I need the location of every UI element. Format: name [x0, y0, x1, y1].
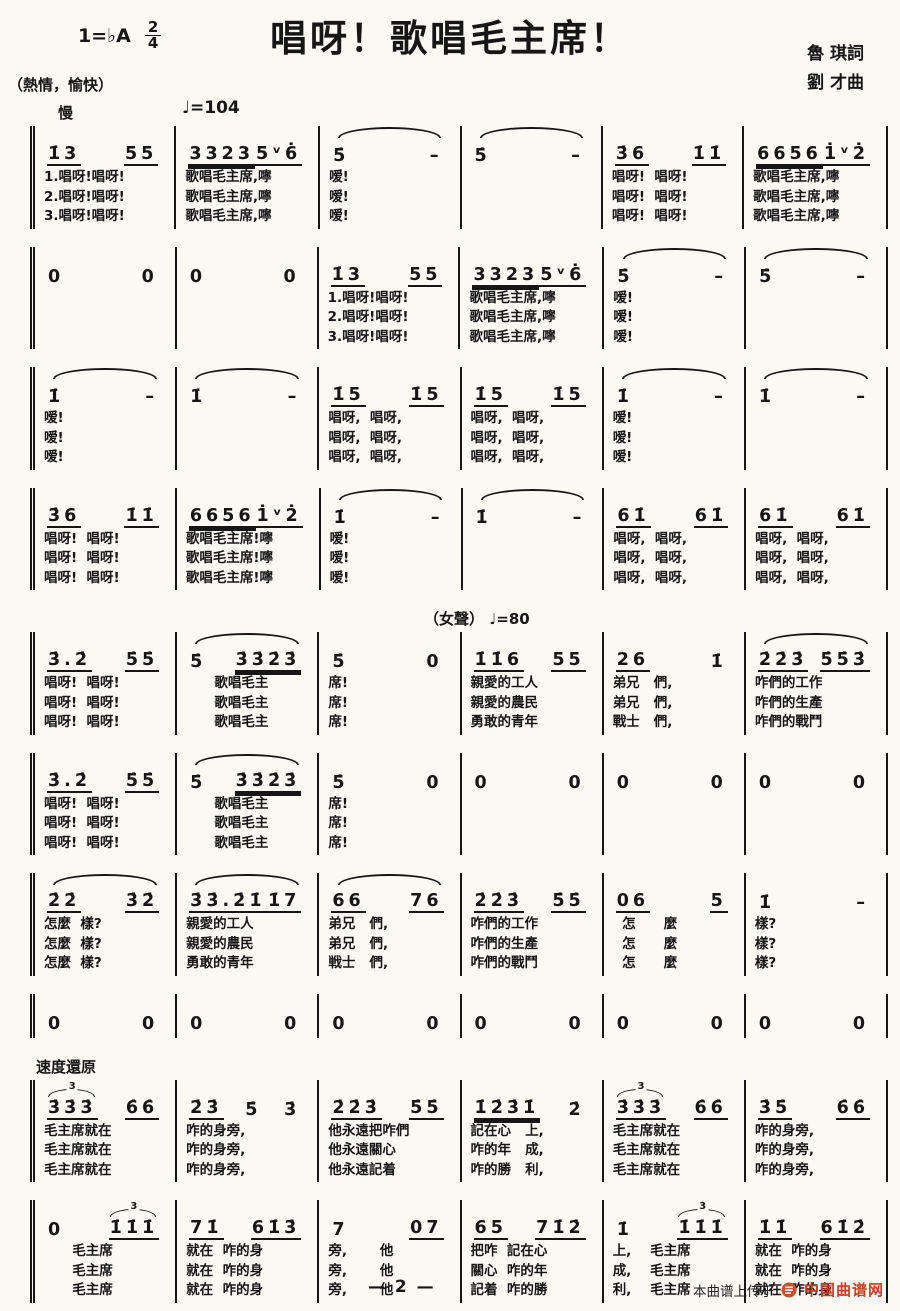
measure: 5̇0席!席!席! [319, 632, 461, 735]
lyric-line: 就在 咋的身 [746, 1242, 886, 1262]
lyric-line: 席! [319, 674, 459, 694]
note-group: 3̇ [283, 1100, 301, 1120]
note-group: 0 [568, 1014, 586, 1034]
notes-row: 00 [604, 994, 744, 1036]
lyric-line: 唱呀! 唱呀! [603, 207, 742, 227]
measure: 3̇.2̇5̇5̇唱呀! 唱呀!唱呀! 唱呀!唱呀! 唱呀! [35, 753, 177, 856]
notes-row: 3̇61̇1̇ [35, 488, 175, 530]
note-group: 0 [141, 267, 159, 287]
note-group: 66 [331, 891, 365, 913]
notes-row: 065 [604, 873, 744, 915]
note-group: 6656 [189, 506, 256, 528]
lyric-line: 歌唱毛主席,嚀 [176, 168, 318, 188]
measure: 33235ᵛ6̇歌唱毛主席,嚀歌唱毛主席,嚀歌唱毛主席,嚀 [176, 126, 320, 229]
notes-row: 1̇– [746, 367, 886, 409]
lyric-line: 怎麼 樣? [35, 935, 175, 955]
lyric-line: 毛主席就在 [35, 1141, 175, 1161]
measure: 1̇–嗳!嗳!嗳! [35, 367, 177, 470]
note-group: 0 [710, 773, 728, 793]
note-group: 5̇5̇ [125, 650, 159, 672]
note-group: 0 [758, 773, 776, 793]
notes-row: 1̇355 [319, 247, 459, 289]
measure: 3̇5̇6̇6̇咋的身旁,咋的身旁,咋的身旁, [746, 1080, 888, 1183]
notes-row: 00 [35, 247, 175, 289]
note-group: 0 [474, 1014, 492, 1034]
note-group: 3̇3̇3̇3 [47, 1098, 98, 1120]
note-group: 1̇ᵛ2̇ [823, 144, 870, 166]
notes-row: 5̇– [462, 126, 601, 168]
note-group: 1̇ [333, 508, 351, 528]
system: 2̇2̇3̇2̇怎麼 樣?怎麼 樣?怎麼 樣?3̇3̇.2̇1̇1̇7親愛的工人… [28, 873, 890, 1038]
score: 1̇3551.唱呀!唱呀!2.唱呀!唱呀!3.唱呀!唱呀!33235ᵛ6̇歌唱毛… [0, 126, 900, 1303]
note-group: 1̇ [47, 387, 65, 407]
lyric-line: 毛主席就在 [35, 1161, 175, 1181]
upload-note: 本曲谱上传于 [693, 1280, 774, 1300]
lyric-line: 2.唱呀!唱呀! [319, 308, 459, 328]
lyric-line: 咋的勝 利, [462, 1161, 602, 1181]
notes-row: 00 [319, 994, 459, 1036]
note-group: 1̇1̇ [758, 1218, 792, 1240]
system: 3̇.2̇5̇5̇唱呀! 唱呀!唱呀! 唱呀!唱呀! 唱呀!5̇3̇3̇2̇3̇… [28, 632, 890, 855]
system: 1̇3551.唱呀!唱呀!2.唱呀!唱呀!3.唱呀!唱呀!33235ᵛ6̇歌唱毛… [28, 126, 890, 349]
measure: 2̇3̇5̇3̇咋的身旁,咋的身旁,咋的身旁, [177, 1080, 319, 1183]
note-group: – [287, 387, 302, 407]
notes-row: 00 [746, 994, 886, 1036]
notes-row: 261̇ [604, 632, 744, 674]
tempo-marking: ♩=104 [182, 98, 240, 118]
note-group: 0 [425, 1014, 443, 1034]
voice-line: 3̇61̇1̇唱呀! 唱呀!唱呀! 唱呀!唱呀! 唱呀!66561̇ᵛ2̇歌唱毛… [30, 488, 888, 591]
measure: 5̇– [462, 126, 603, 229]
note-group: – [430, 508, 445, 528]
lyric-line: 歌唱毛主席,嚀 [460, 328, 602, 348]
lyric-line: 樣? [746, 915, 886, 935]
score-header: 1=♭A 2 4 唱呀！歌唱毛主席！ 魯 琪詞 劉 才曲 （熱情，愉快） 慢 ♩… [0, 0, 900, 126]
measure: 5̇–嗳!嗳!嗳! [320, 126, 461, 229]
note-group: 0 [141, 1014, 159, 1034]
expression-mark: （熱情，愉快） [8, 74, 113, 95]
notes-row: 1̇355 [35, 126, 174, 168]
notes-row: 00 [35, 994, 175, 1036]
measure: 5̇– [746, 247, 888, 350]
note-group: 06 [616, 891, 650, 913]
lyric-line: 他永遠關心 [319, 1141, 459, 1161]
lyric-line: 歌唱毛主席,嚀 [744, 207, 886, 227]
measure: 6676弟兄 們,弟兄 們,戦士 們, [319, 873, 461, 976]
site-name: 中国曲谱网 [804, 1279, 884, 1300]
triplet-mark: 3 [67, 1082, 78, 1092]
measure: 00 [604, 753, 746, 856]
lyric-line: 唱呀, 唱呀, [462, 429, 602, 449]
notes-row: 707 [319, 1200, 459, 1242]
notes-row: 5̇3̇3̇2̇3̇ [177, 632, 317, 674]
system: 3̇3̇3̇36̇6̇毛主席就在毛主席就在毛主席就在2̇3̇5̇3̇咋的身旁,咋… [28, 1080, 890, 1303]
measure: 00 [746, 994, 888, 1038]
note-group: 3̇3̇2̇3̇ [235, 771, 302, 793]
note-group: 0 [616, 773, 634, 793]
notes-row: 5̇0 [319, 632, 459, 674]
voice-line: 1̇3551.唱呀!唱呀!2.唱呀!唱呀!3.唱呀!唱呀!33235ᵛ6̇歌唱毛… [30, 126, 888, 229]
note-group: 6656 [756, 144, 823, 166]
note-group: 61̇ [758, 506, 792, 528]
notes-row: 66561̇ᵛ2̇ [744, 126, 886, 168]
note-group: 5̇ [332, 146, 350, 166]
lyric-line: 咋的身旁, [177, 1122, 317, 1142]
measure: 2̇2̇3̇2̇怎麼 樣?怎麼 樣?怎麼 樣? [35, 873, 177, 976]
lyric-line: 毛主席就在 [604, 1161, 744, 1181]
note-group: 5̇ [474, 146, 492, 166]
note-group: 61̇ [694, 506, 728, 528]
lyric-line: 戦士 們, [319, 954, 459, 974]
lyric-line: 嗳! [604, 289, 744, 309]
note-group: 5̇ [331, 773, 349, 793]
lyric-line: 歌唱毛主席!嚀 [177, 549, 319, 569]
measure: 1̇3551.唱呀!唱呀!2.唱呀!唱呀!3.唱呀!唱呀! [35, 126, 176, 229]
measure: 61̇61̇唱呀, 唱呀,唱呀, 唱呀,唱呀, 唱呀, [746, 488, 888, 591]
note-group: 1̇3 [47, 144, 81, 166]
notes-row: 00 [462, 994, 602, 1036]
note-group: 0 [425, 652, 443, 672]
note-group: 0 [474, 773, 492, 793]
note-group: 7 [331, 1220, 349, 1240]
notes-row: 2̇2̇3̇5̇5̇ [319, 1080, 459, 1122]
measure: 00 [177, 247, 319, 350]
note-group: 6̇6̇ [125, 1098, 159, 1120]
note-group: 3̇5̇ [758, 1098, 792, 1120]
tempo-annotation: （女聲） ♩=80 [424, 608, 890, 629]
measure: 1̇2̇3̇1̇2̇記在心 上,咋的年 成,咋的勝 利, [462, 1080, 604, 1183]
note-group: 0 [852, 1014, 870, 1034]
notes-row: 5̇– [746, 247, 886, 289]
composer-credit: 劉 才曲 [807, 69, 864, 98]
note-group: 5 [710, 891, 728, 913]
lyric-line: 歌唱毛主席,嚀 [176, 207, 318, 227]
note-group: 5̇5̇ [125, 771, 159, 793]
notes-row: 1̇– [35, 367, 175, 409]
note-group: – [855, 893, 870, 913]
lyric-line: 唱呀! 唱呀! [35, 795, 175, 815]
lyric-line: 弟兄 們, [604, 674, 744, 694]
note-group: 55 [124, 144, 158, 166]
lyric-line: 唱呀, 唱呀, [319, 429, 459, 449]
measure: 1̇–嗳!嗳!嗳! [604, 367, 746, 470]
measure: 1̇– [177, 367, 319, 470]
note-group: 5̇ [758, 267, 776, 287]
notes-row: 6571̇2̇ [462, 1200, 602, 1242]
note-group: – [713, 387, 728, 407]
notes-row: 00 [462, 753, 602, 795]
lyric-line: 咋的身旁, [177, 1141, 317, 1161]
lyric-line: 唱呀, 唱呀, [604, 569, 744, 589]
lyric-line: 嗳! [321, 569, 461, 589]
note-group: 6̇6̇ [694, 1098, 728, 1120]
lyric-line: 唱呀! 唱呀! [35, 694, 175, 714]
note-group: 5ᵛ6̇ [255, 144, 302, 166]
notes-row: 00 [177, 247, 317, 289]
note-group: 3̇3̇.2̇1̇ [189, 891, 266, 913]
notes-row: 2̇2̇3̇5̇5̇ [462, 873, 602, 915]
note-group: 61̇2̇ [820, 1218, 871, 1240]
lyric-line: 唱呀! 唱呀! [35, 674, 175, 694]
note-group: 0 [47, 267, 65, 287]
page-title: 唱呀！歌唱毛主席！ [0, 8, 900, 62]
lyric-line: 咋們的生產 [746, 694, 886, 714]
lyric-line: 嗳! [604, 328, 744, 348]
lyric-line: 歌唱毛主 [177, 674, 317, 694]
note-group: – [572, 508, 587, 528]
measure: 1̇–嗳!嗳!嗳! [321, 488, 463, 591]
measure: 33235ᵛ6̇歌唱毛主席,嚀歌唱毛主席,嚀歌唱毛主席,嚀 [460, 247, 604, 350]
note-group: 0 [47, 1014, 65, 1034]
notes-row: 3̇61̇1̇ [603, 126, 742, 168]
notes-row: 5̇– [320, 126, 459, 168]
lyric-line: 1.唱呀!唱呀! [35, 168, 174, 188]
notes-row: 1̇– [177, 367, 317, 409]
lyric-line: 咋們的工作 [746, 674, 886, 694]
note-group: – [570, 146, 585, 166]
measure: 2̇2̇3̇5̇5̇3̇咋們的工作咋們的生產咋們的戰鬥 [746, 632, 888, 735]
upload-attribution: 本曲谱上传于 中国曲谱网 [693, 1279, 884, 1300]
lyric-line: 嗳! [320, 188, 459, 208]
voice-line: 3̇3̇3̇36̇6̇毛主席就在毛主席就在毛主席就在2̇3̇5̇3̇咋的身旁,咋… [30, 1080, 888, 1183]
lyric-line: 弟兄 們, [319, 915, 459, 935]
lyric-line: 嗳! [604, 448, 744, 468]
lyric-line: 嗳! [321, 530, 461, 550]
lyric-line: 唱呀! 唱呀! [35, 549, 175, 569]
lyric-line: 唱呀, 唱呀, [746, 549, 886, 569]
measure: 1̇1̇655親愛的工人親愛的農民勇敢的青年 [462, 632, 604, 735]
note-group: 55 [408, 265, 442, 287]
page-footer: — 2 — 本曲谱上传于 中国曲谱网 [0, 1275, 900, 1301]
note-group: – [429, 146, 444, 166]
note-group: 3̇.2̇ [47, 650, 92, 672]
lyric-line: 唱呀! 唱呀! [35, 814, 175, 834]
note-group: 5̇ [244, 1100, 262, 1120]
note-group: 5̇ [189, 773, 207, 793]
lyric-line: 唱呀! 唱呀! [35, 713, 175, 733]
note-group: 1̇ [758, 387, 776, 407]
measure: 00 [462, 994, 604, 1038]
triplet-mark: 3 [128, 1202, 139, 1212]
lyric-line: 歌唱毛主席!嚀 [177, 530, 319, 550]
notes-row: 1̇51̇5 [462, 367, 602, 409]
sheet-music-page: 1=♭A 2 4 唱呀！歌唱毛主席！ 魯 琪詞 劉 才曲 （熱情，愉快） 慢 ♩… [0, 0, 900, 1311]
voice-line: 1̇–嗳!嗳!嗳!1̇–1̇51̇5唱呀, 唱呀,唱呀, 唱呀,唱呀, 唱呀,1… [30, 367, 888, 470]
measure: 61̇61̇唱呀, 唱呀,唱呀, 唱呀,唱呀, 唱呀, [604, 488, 746, 591]
note-group: 3̇2̇ [125, 891, 159, 913]
note-group: 0 [189, 1014, 207, 1034]
note-group: – [144, 387, 159, 407]
lyric-line: 2.唱呀!唱呀! [35, 188, 174, 208]
note-group: 61̇ [836, 506, 870, 528]
notes-row: 2̇2̇3̇2̇ [35, 873, 175, 915]
lyric-line: 歌唱毛主 [177, 814, 317, 834]
notes-row: 5̇– [604, 247, 744, 289]
lyric-line: 唱呀! 唱呀! [35, 569, 175, 589]
measure: 3̇.2̇5̇5̇唱呀! 唱呀!唱呀! 唱呀!唱呀! 唱呀! [35, 632, 177, 735]
note-group: 0 [852, 773, 870, 793]
note-group: 5̇ [189, 652, 207, 672]
note-group: 07 [409, 1218, 443, 1240]
measure: 3̇3̇.2̇1̇1̇7親愛的工人親愛的農民勇敢的青年 [177, 873, 319, 976]
note-group: 1̇7 [267, 891, 301, 913]
lyric-line: 嗳! [320, 168, 459, 188]
note-group: 76 [409, 891, 443, 913]
notes-row: 3̇.2̇5̇5̇ [35, 632, 175, 674]
note-group: 1̇2̇3̇1̇ [474, 1098, 541, 1120]
triplet-mark: 3 [697, 1202, 708, 1212]
note-group: 1̇ [616, 1220, 634, 1240]
measure: 1̇51̇5唱呀, 唱呀,唱呀, 唱呀,唱呀, 唱呀, [319, 367, 461, 470]
note-group: 2̇2̇ [47, 891, 81, 913]
notes-row: 1̇– [604, 367, 744, 409]
note-group: 3323 [188, 144, 255, 166]
lyric-line: 嗳! [321, 549, 461, 569]
note-group: 0 [189, 267, 207, 287]
lyric-line: 嗳! [35, 448, 175, 468]
note-group: 2̇ [568, 1100, 586, 1120]
note-group: 3323 [472, 265, 539, 287]
notes-row: 1̇1̇61̇2̇ [746, 1200, 886, 1242]
lyric-line: 怎麼 樣? [35, 915, 175, 935]
lyric-line: 怎麼 樣? [35, 954, 175, 974]
measure: 00 [35, 994, 177, 1038]
note-group: 0 [568, 773, 586, 793]
notes-row: 61̇61̇ [604, 488, 744, 530]
measure: 00 [462, 753, 604, 856]
notes-row: 1̇– [463, 488, 603, 530]
lyric-line: 他永遠把咋們 [319, 1122, 459, 1142]
lyric-line: 席! [319, 694, 459, 714]
lyric-line: 樣? [746, 954, 886, 974]
note-group: 5̇5̇3̇ [820, 650, 871, 672]
note-group: 2̇3̇ [189, 1098, 223, 1120]
lyric-line: 他永遠記着 [319, 1161, 459, 1181]
note-group: 0 [331, 1014, 349, 1034]
notes-row: 33235ᵛ6̇ [460, 247, 602, 289]
notes-row: 3̇3̇3̇36̇6̇ [35, 1080, 175, 1122]
note-group: 1̇ [189, 387, 207, 407]
notes-row: 1̇51̇5 [319, 367, 459, 409]
note-group: 2̇2̇3̇ [331, 1098, 382, 1120]
lyric-line: 咋的身旁, [746, 1141, 886, 1161]
lyric-line: 怎 麼 [604, 954, 744, 974]
measure: 00 [177, 994, 319, 1038]
measure: 00 [319, 994, 461, 1038]
lyric-line: 親愛的農民 [177, 935, 317, 955]
measure: 3̇3̇3̇36̇6̇毛主席就在毛主席就在毛主席就在 [35, 1080, 177, 1183]
lyric-line: 嗳! [604, 429, 744, 449]
measure: 1̇– [746, 367, 888, 470]
note-group: 5̇5̇ [409, 1098, 443, 1120]
notes-row: 5̇3̇3̇2̇3̇ [177, 753, 317, 795]
note-group: – [855, 387, 870, 407]
lyric-line: 上, 毛主席 [604, 1242, 744, 1262]
voice-line: 3̇.2̇5̇5̇唱呀! 唱呀!唱呀! 唱呀!唱呀! 唱呀!5̇3̇3̇2̇3̇… [30, 753, 888, 856]
notes-row: 00 [746, 753, 886, 795]
measure: 00 [35, 247, 177, 350]
notes-row: 3̇3̇.2̇1̇1̇7 [177, 873, 317, 915]
lyric-line: 席! [319, 713, 459, 733]
lyric-line: 唱呀, 唱呀, [604, 530, 744, 550]
note-group: 1̇5 [331, 385, 365, 407]
lyric-line: 3.唱呀!唱呀! [319, 328, 459, 348]
note-group: 2̇2̇3̇ [758, 650, 809, 672]
lyric-line: 弟兄 們, [319, 935, 459, 955]
lyric-line: 唱呀, 唱呀, [462, 448, 602, 468]
notes-row: 1̇– [746, 873, 886, 915]
lyric-line: 唱呀, 唱呀, [462, 409, 602, 429]
note-group: 1̇5 [474, 385, 508, 407]
lyric-line: 嗳! [35, 429, 175, 449]
measure: 3̇61̇1̇唱呀! 唱呀!唱呀! 唱呀!唱呀! 唱呀! [603, 126, 744, 229]
tempo-label: 慢 [58, 102, 73, 123]
lyric-line: 怎 麼 [604, 935, 744, 955]
lyric-line: 歌唱毛主 [177, 795, 317, 815]
lyric-line: 歌唱毛主席!嚀 [177, 569, 319, 589]
note-group: 1̇1̇ [124, 506, 158, 528]
lyric-line: 毛主席 [35, 1242, 175, 1262]
note-group: 3̇.2̇ [47, 771, 92, 793]
triplet-mark: 3 [635, 1082, 646, 1092]
note-group: 1̇ [758, 893, 776, 913]
note-group: 5̇ [331, 652, 349, 672]
note-group: 5̇5̇ [551, 891, 585, 913]
lyric-line: 咋們的戰鬥 [746, 713, 886, 733]
note-group: 0 [282, 267, 300, 287]
notes-row: 00 [604, 753, 744, 795]
note-group: 1̇ [475, 508, 493, 528]
lyric-line: 親愛的工人 [177, 915, 317, 935]
lyric-line: 唱呀, 唱呀, [604, 549, 744, 569]
note-group: 2̇2̇3̇ [474, 891, 525, 913]
notes-row: 1̇2̇3̇1̇2̇ [462, 1080, 602, 1122]
measure: 3̇61̇1̇唱呀! 唱呀!唱呀! 唱呀!唱呀! 唱呀! [35, 488, 177, 591]
voice-line: 3̇.2̇5̇5̇唱呀! 唱呀!唱呀! 唱呀!唱呀! 唱呀!5̇3̇3̇2̇3̇… [30, 632, 888, 735]
measure: 00 [604, 994, 746, 1038]
note-group: 1̇1̇6 [474, 650, 525, 672]
lyric-line: 席! [319, 834, 459, 854]
page-number: — 2 — [368, 1277, 436, 1297]
lyric-line: 唱呀, 唱呀, [746, 530, 886, 550]
note-group: 71̇2̇ [535, 1218, 586, 1240]
notes-row: 1̇– [321, 488, 461, 530]
note-group: 3̇6 [47, 506, 81, 528]
note-group: 3̇6 [615, 144, 649, 166]
note-group: – [713, 267, 728, 287]
note-group: 5̇ [616, 267, 634, 287]
measure: 5̇3̇3̇2̇3̇ 歌唱毛主 歌唱毛主 歌唱毛主 [177, 632, 319, 735]
notes-row: 66561̇ᵛ2̇ [177, 488, 319, 530]
note-group: 55 [551, 650, 585, 672]
note-group: 61̇ [616, 506, 650, 528]
lyric-line: 1.唱呀!唱呀! [319, 289, 459, 309]
measure: 5̇0席!席!席! [319, 753, 461, 856]
lyricist-credit: 魯 琪詞 [807, 40, 864, 69]
tempo-annotation: 速度還原 [36, 1056, 890, 1077]
lyric-line: 唱呀! 唱呀! [603, 188, 742, 208]
notes-row: 3̇5̇6̇6̇ [746, 1080, 886, 1122]
note-group: 71̇ [189, 1218, 223, 1240]
note-group: 6̇6̇ [836, 1098, 870, 1120]
note-group: 0 [758, 1014, 776, 1034]
lyric-line: 嗳! [320, 207, 459, 227]
credits: 魯 琪詞 劉 才曲 [807, 40, 864, 98]
note-group: 0 [616, 1014, 634, 1034]
lyric-line: 咋們的生產 [462, 935, 602, 955]
notes-row: 01̇1̇1̇3 [35, 1200, 175, 1242]
lyric-line: 把咋 記在心 [462, 1242, 602, 1262]
